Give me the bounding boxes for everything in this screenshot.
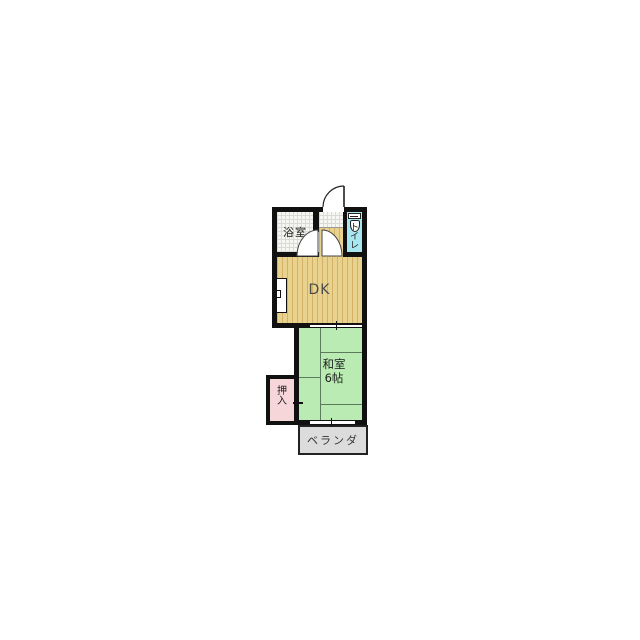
wall-japanese-room-left xyxy=(294,323,299,425)
entry-door-swing-arc xyxy=(323,186,344,207)
toilet-label-char: レ xyxy=(350,242,359,251)
wall-bathroom-right xyxy=(313,212,319,232)
wall-left xyxy=(272,207,277,328)
floorplan: 浴室 ト イ レ DK 和室 6帖 押 xyxy=(0,0,640,640)
wall-japanese-room-bottom-right xyxy=(355,420,367,425)
vestibule-floor xyxy=(319,228,343,257)
bathroom-room: 浴室 xyxy=(277,212,313,252)
sliding-door-center-tick xyxy=(336,321,337,330)
closet-label: 押 入 xyxy=(270,387,294,407)
entry-hall xyxy=(319,212,343,228)
floorplan-canvas: 浴室 ト イ レ DK 和室 6帖 押 xyxy=(0,0,640,640)
wall-closet-bottom xyxy=(266,421,294,425)
japanese-room-label: 和室 6帖 xyxy=(312,358,356,385)
closet-door-tick xyxy=(293,402,303,404)
bathroom-label: 浴室 xyxy=(277,212,313,252)
balcony-window-center-tick xyxy=(331,418,332,427)
dining-kitchen-label: DK xyxy=(277,257,362,323)
closet-label-char: 入 xyxy=(277,397,287,407)
wall-closet-top xyxy=(266,375,294,379)
wall-closet-left xyxy=(266,375,270,425)
wall-toilet-left xyxy=(343,212,347,257)
wall-japanese-room-bottom-left xyxy=(294,420,310,425)
toilet-tank-handle-icon xyxy=(350,216,358,217)
wall-bathroom-bottom xyxy=(272,252,319,257)
balcony-window xyxy=(310,420,355,425)
japanese-room-name: 和室 xyxy=(312,358,356,372)
dining-kitchen-room: DK xyxy=(277,257,362,323)
japanese-room-size: 6帖 xyxy=(312,372,356,386)
wall-dk-bottom-left xyxy=(272,323,310,328)
wall-right xyxy=(362,207,367,425)
wall-toilet-bottom xyxy=(343,252,367,257)
tatami-seam-horizontal xyxy=(320,352,362,353)
veranda: ベランダ xyxy=(298,425,368,455)
tatami-seam-horizontal xyxy=(320,404,362,405)
